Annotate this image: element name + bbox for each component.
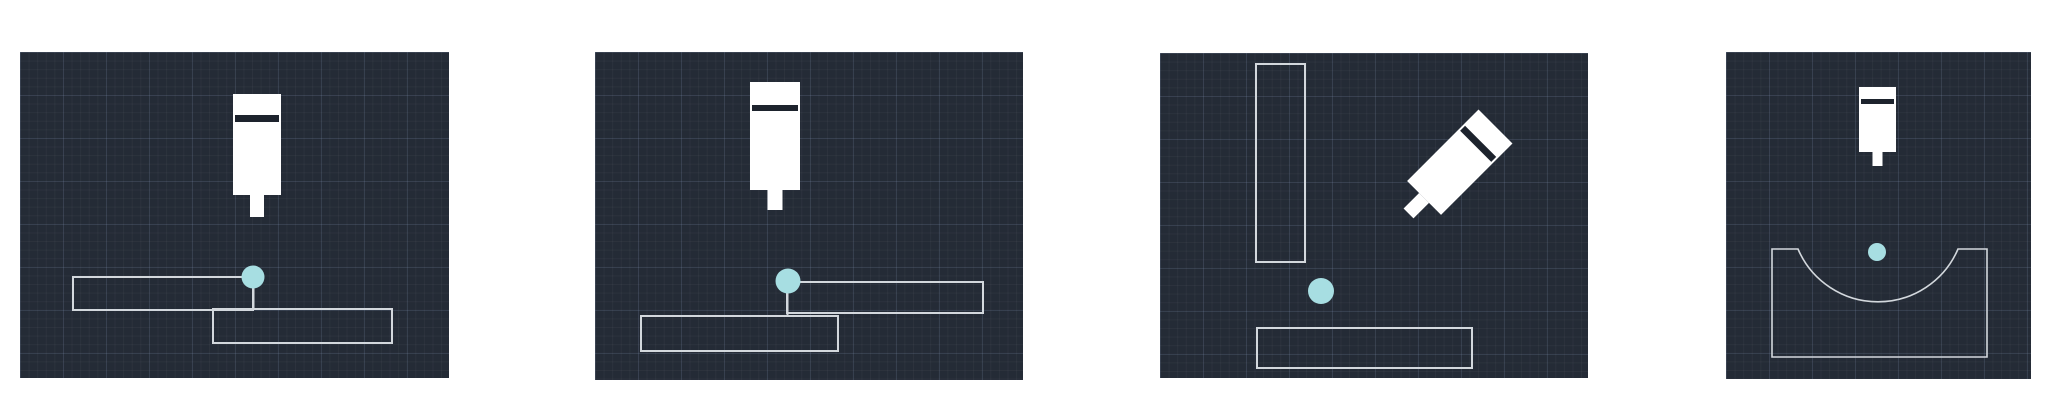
corner-joint-angled-torch-drawing — [1160, 53, 1588, 378]
welding-torch-icon — [750, 82, 800, 210]
panel-corner-joint-angled-torch[interactable] — [1160, 53, 1588, 378]
torch-tip — [250, 195, 264, 217]
lap-joint-upper-right-plate-drawing — [595, 52, 1023, 380]
weld-point-marker — [1868, 243, 1886, 261]
welding-torch-icon — [1392, 110, 1513, 231]
torch-body — [233, 94, 281, 195]
torch-band — [1861, 99, 1894, 104]
welding-torch-icon — [1859, 87, 1896, 166]
workpiece-plate-outline — [641, 316, 838, 351]
workpiece-plate-outline — [1257, 328, 1472, 368]
workpiece-plate-outline — [787, 282, 983, 313]
torch-body — [1859, 87, 1896, 152]
torch-band — [752, 105, 798, 111]
weld-point-marker — [242, 266, 265, 289]
weld-point-marker — [1308, 278, 1334, 304]
weld-point-marker — [776, 269, 801, 294]
panel-lap-joint-upper-right-plate[interactable] — [595, 52, 1023, 380]
weld-joint-diagram-strip — [0, 0, 2061, 413]
workpiece-plate-outline — [73, 277, 253, 310]
torch-body — [750, 82, 800, 190]
torch-band — [235, 115, 279, 122]
workpiece-groove-plate-outline — [1772, 249, 1987, 357]
panel-curved-groove-joint[interactable] — [1726, 52, 2031, 379]
torch-tip — [1873, 152, 1883, 166]
workpiece-plate-outline — [213, 309, 392, 343]
welding-torch-icon — [233, 94, 281, 217]
torch-tip — [768, 190, 783, 210]
curved-groove-joint-drawing — [1726, 52, 2031, 379]
workpiece-plate-outline — [1256, 64, 1305, 262]
lap-joint-upper-left-plate-drawing — [20, 52, 449, 378]
panel-lap-joint-upper-left-plate[interactable] — [20, 52, 449, 378]
